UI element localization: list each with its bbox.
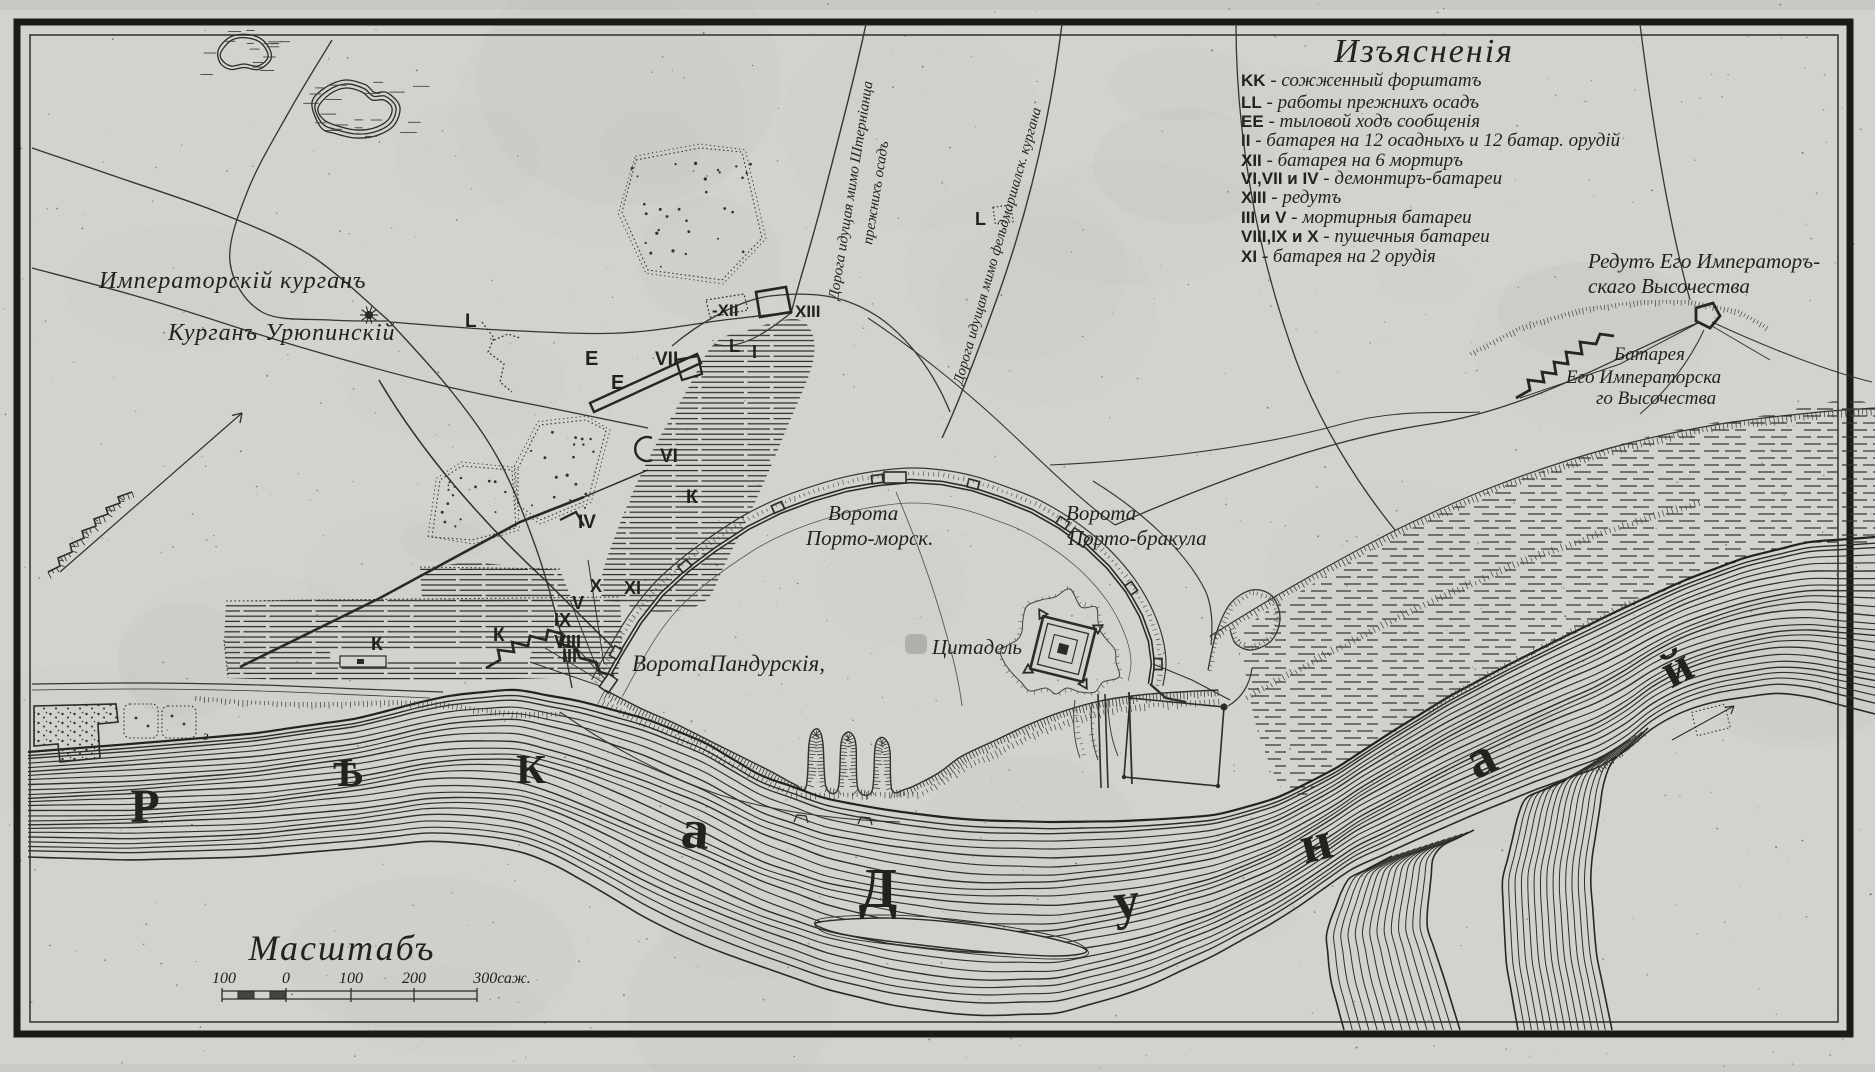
svg-text:Порто-морск.: Порто-морск. <box>805 526 933 550</box>
svg-text:К: К <box>516 746 546 792</box>
svg-text:VIII,IX и X - пушечныя батареи: VIII,IX и X - пушечныя батареи <box>1241 226 1490 247</box>
svg-text:VI: VI <box>660 446 678 467</box>
svg-text:а: а <box>679 798 711 862</box>
svg-text:Ворота: Ворота <box>1066 501 1136 525</box>
svg-text:L: L <box>465 311 477 332</box>
svg-text:Масштабъ: Масштабъ <box>248 928 436 968</box>
svg-text:го Высочества: го Высочества <box>1596 388 1716 409</box>
svg-text:Р: Р <box>130 780 159 833</box>
svg-text:KK - сожженный форштатъ: KK - сожженный форштатъ <box>1241 70 1482 91</box>
svg-text:300саж.: 300саж. <box>472 970 531 987</box>
svg-text:Ѣ: Ѣ <box>333 750 364 795</box>
svg-text:III и V - мортирныя батареи: III и V - мортирныя батареи <box>1241 207 1472 228</box>
svg-text:100: 100 <box>339 970 363 987</box>
svg-text:IX: IX <box>554 610 571 630</box>
svg-text:-XII: -XII <box>712 301 738 320</box>
svg-text:Изъясненія: Изъясненія <box>1333 33 1514 70</box>
svg-text:200: 200 <box>402 970 426 987</box>
svg-text:Редутъ Его Императоръ-: Редутъ Его Императоръ- <box>1587 249 1820 273</box>
svg-text:з: з <box>202 729 209 744</box>
svg-text:LL - работы прежнихъ осадъ: LL - работы прежнихъ осадъ <box>1241 92 1479 113</box>
svg-text:Курганъ Урюпинскій: Курганъ Урюпинскій <box>167 320 396 346</box>
svg-text:Д: Д <box>859 858 898 920</box>
svg-text:К: К <box>371 634 383 655</box>
svg-text:L: L <box>729 336 740 356</box>
svg-text:VII: VII <box>655 349 678 370</box>
svg-text:Его Императорска: Его Императорска <box>1565 367 1721 388</box>
svg-text:Цитадель: Цитадель <box>931 635 1022 659</box>
svg-text:XIII - редутъ: XIII - редутъ <box>1241 187 1341 208</box>
svg-text:III: III <box>562 646 577 666</box>
svg-text:скаго Высочества: скаго Высочества <box>1588 274 1750 298</box>
svg-text:0: 0 <box>282 970 290 987</box>
svg-text:ВоротаПандурскія,: ВоротаПандурскія, <box>632 651 825 676</box>
svg-text:XI - батарея на 2 орудія: XI - батарея на 2 орудія <box>1241 246 1436 267</box>
svg-text:100: 100 <box>212 970 236 987</box>
svg-text:К: К <box>686 487 698 508</box>
svg-text:II - батарея на 12 осадныхъ и: II - батарея на 12 осадныхъ и 12 батар. … <box>1241 130 1621 151</box>
svg-text:Императорскій курганъ: Императорскій курганъ <box>98 268 366 294</box>
svg-text:XI: XI <box>624 578 641 598</box>
svg-text:XIII: XIII <box>795 302 821 321</box>
svg-text:X: X <box>590 576 602 596</box>
svg-text:VI,VII и IV - демонтиръ-батаре: VI,VII и IV - демонтиръ-батареи <box>1241 168 1502 189</box>
svg-text:EE - тыловой ходъ сообщенія: EE - тыловой ходъ сообщенія <box>1241 111 1480 132</box>
svg-text:Порто-бракула: Порто-бракула <box>1067 526 1207 550</box>
svg-text:E: E <box>611 372 624 394</box>
svg-text:I: I <box>752 342 757 362</box>
svg-text:К: К <box>493 625 505 646</box>
svg-text:L: L <box>975 209 986 229</box>
svg-text:IV: IV <box>578 512 596 533</box>
svg-text:Ворота: Ворота <box>828 501 898 525</box>
svg-text:E: E <box>585 348 598 370</box>
svg-text:V: V <box>572 593 584 613</box>
